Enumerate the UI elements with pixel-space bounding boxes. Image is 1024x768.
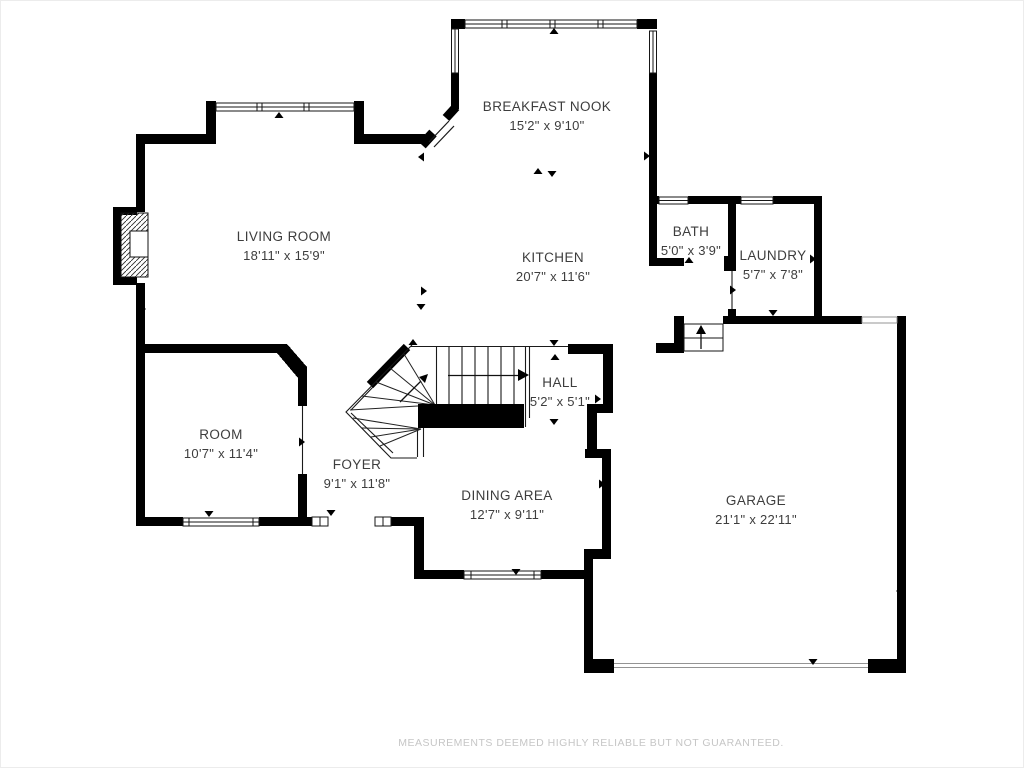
stair-half-wall xyxy=(418,404,524,428)
garage-steps xyxy=(684,324,723,351)
fireplace xyxy=(121,213,148,277)
measurements-disclaimer: MEASUREMENTS DEEMED HIGHLY RELIABLE BUT … xyxy=(398,737,784,749)
windows xyxy=(183,20,897,579)
garage-door-line xyxy=(614,664,868,668)
floor-plan-page: BREAKFAST NOOK 15'2" x 9'10" LIVING ROOM… xyxy=(0,0,1024,768)
staircase xyxy=(346,345,568,458)
floor-plan-drawing xyxy=(1,1,1024,768)
garage-top-window xyxy=(862,317,897,323)
stairs-up-arrow-icon xyxy=(400,369,529,402)
door-opening-lines xyxy=(303,271,733,474)
